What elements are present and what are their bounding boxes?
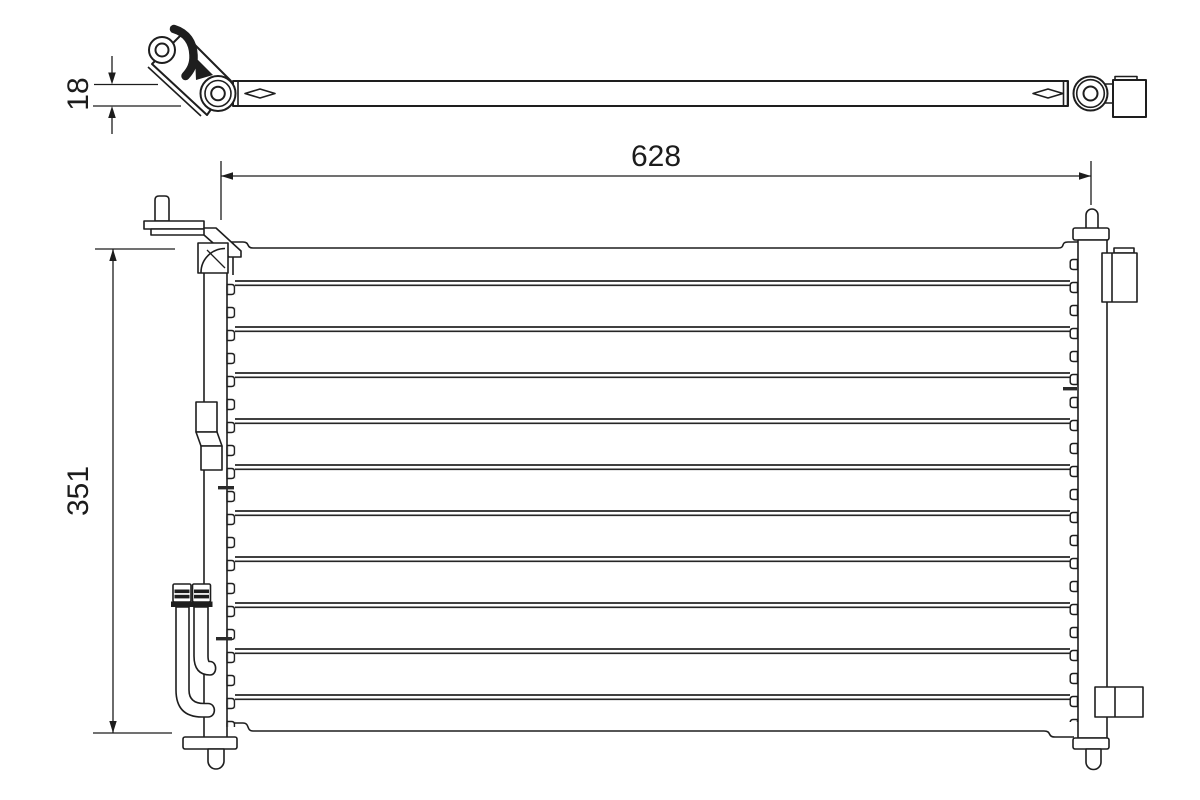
mounting-plate-lower [151,229,211,235]
left-tick-mark-upper [218,486,234,489]
condenser-technical-drawing: 18 628 351 [0,0,1200,800]
z-bracket-lower [201,446,222,470]
lower-bracket-right [1095,687,1143,717]
bottom-collar-right [1073,738,1109,749]
tank-top-block [198,243,228,273]
right-tick-mark [1063,387,1077,390]
dimension-label-628: 628 [631,140,681,173]
mounting-bracket-top-view [1113,80,1146,117]
receiver-drier-body [1078,240,1107,738]
pipe-cap-base-flange [171,602,213,608]
header-serration-left [226,279,235,727]
z-bracket-middle [196,432,222,446]
pipe-cap-right-thread-band [194,590,209,594]
pipe-cap-left-thread-band2 [175,595,190,599]
port-outer-ring [1074,77,1108,111]
header-serration-right [1070,254,1079,722]
top-pin-right [1086,209,1098,229]
bottom-pin-right [1086,749,1101,770]
foot-collar-left [183,737,237,749]
condenser-side-profile-bar [233,81,1068,106]
left-tick-mark-lower [216,637,232,640]
dimension-label-351: 351 [62,466,95,516]
z-bracket-upper [196,402,217,432]
pipe-cap-left-thread-band [175,590,190,594]
mounting-stud-top-left [155,196,169,221]
foot-pin-left [208,749,224,769]
mounting-plate-upper [144,221,204,229]
eyelet-ring [149,37,175,63]
pipe-cap-right-thread-band2 [194,595,209,599]
dimension-label-18: 18 [62,77,95,110]
upper-bracket-right [1102,253,1137,302]
top-collar-right [1073,228,1109,240]
